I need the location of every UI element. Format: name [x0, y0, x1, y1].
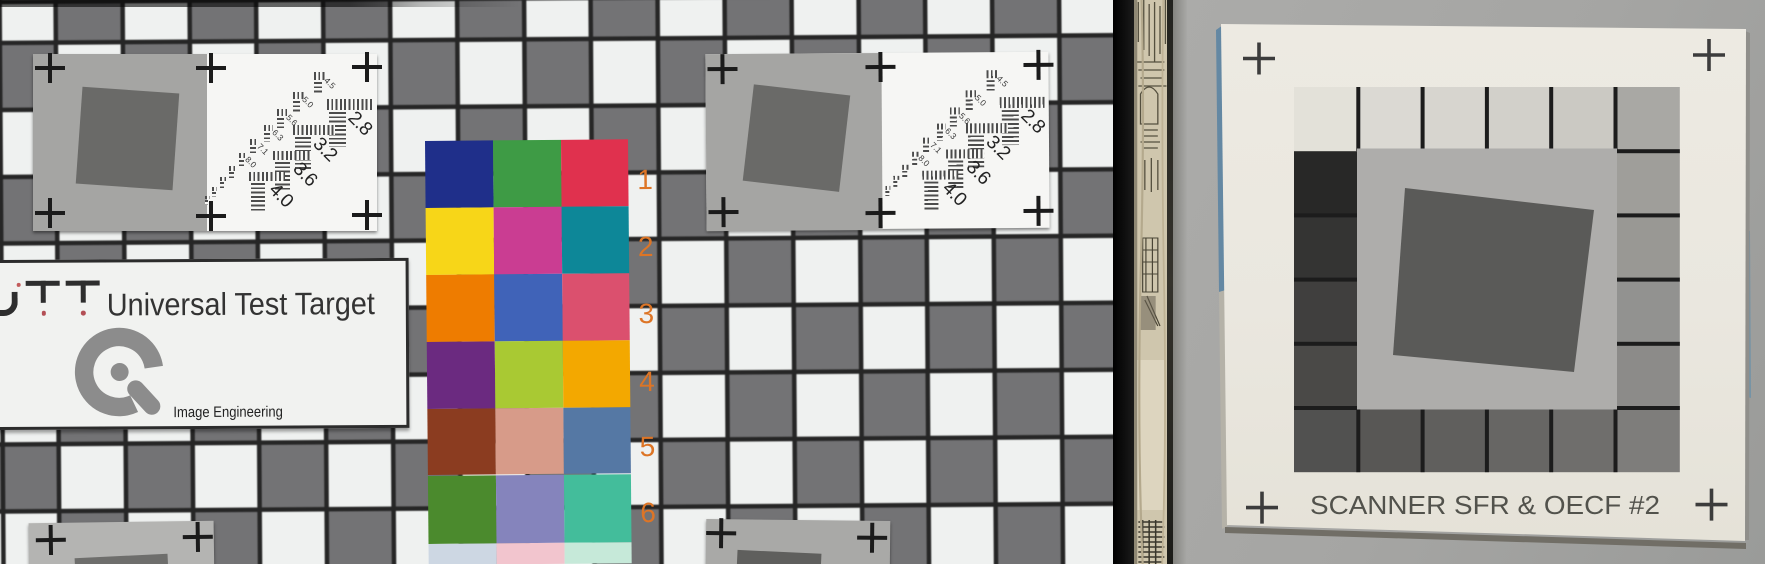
svg-text:SCANNER SFR & OECF #2: SCANNER SFR & OECF #2 [1310, 490, 1660, 520]
